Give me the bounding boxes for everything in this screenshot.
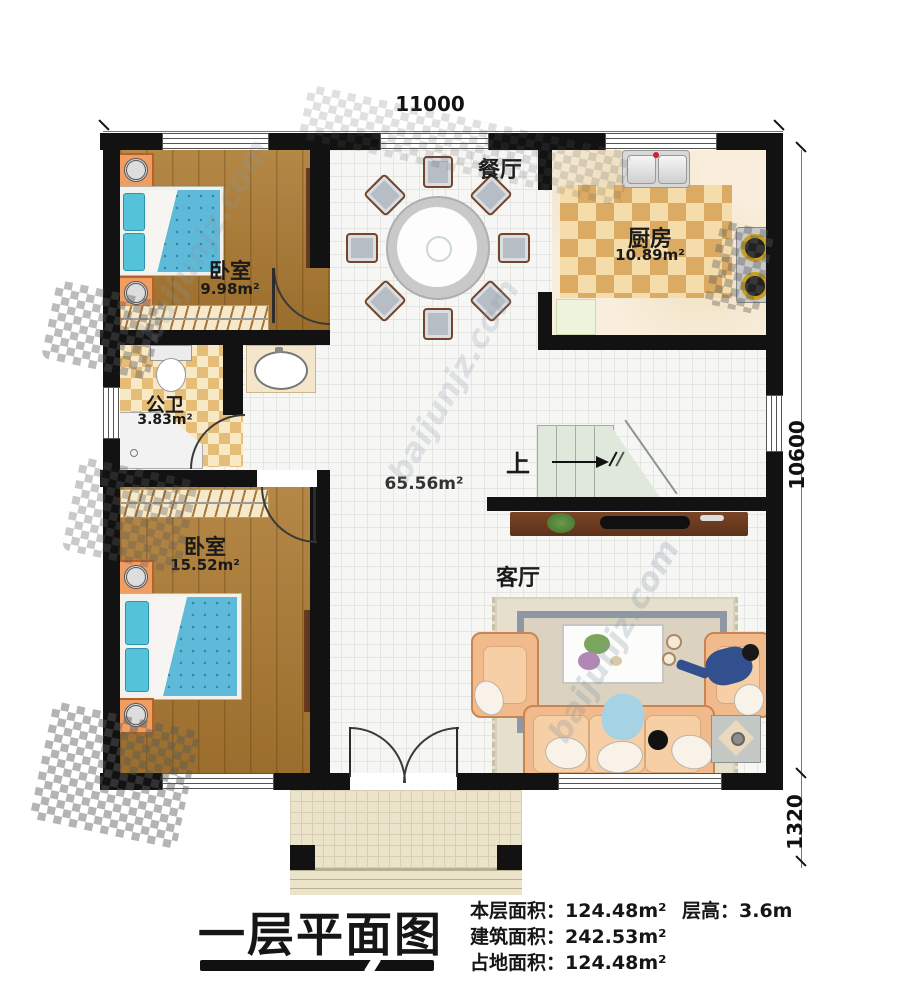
porch-column: [497, 845, 522, 870]
bed-bedroom-bottom: [118, 593, 242, 700]
door-leaf: [313, 487, 316, 542]
dimension-tick: [98, 119, 109, 130]
stat-land-area: 占地面积：124.48m²: [470, 950, 666, 976]
wall-bathroom-top: [100, 330, 330, 345]
stats-block: 本层面积：124.48m² 建筑面积：242.53m² 占地面积：124.48m…: [470, 898, 666, 976]
pillow: [123, 193, 145, 231]
stat-value: 124.48m²: [565, 900, 666, 922]
lamp-symbol: [124, 565, 148, 589]
person-head: [648, 730, 668, 750]
side-table: [711, 715, 761, 763]
table-lamp-icon: [731, 732, 745, 746]
lamp-symbol: [124, 158, 148, 182]
dimension-right-height: 10600: [785, 405, 809, 505]
dining-chair: [498, 233, 530, 263]
dining-label: 餐厅: [460, 152, 540, 184]
dining-chair: [423, 156, 453, 188]
wall-bedroom-top-right: [310, 150, 330, 268]
stat-value: 242.53m²: [565, 926, 666, 948]
nightstand: [118, 153, 154, 189]
bedroom-bottom-area: 15.52m²: [155, 556, 255, 574]
dining-table-center: [426, 236, 452, 262]
pillow: [123, 233, 145, 271]
window: [558, 773, 722, 790]
dimension-porch-height: 1320: [783, 782, 807, 862]
coffee-table: [562, 624, 664, 684]
dining-table: [386, 196, 490, 300]
wall-under-stairs: [487, 497, 783, 511]
pillow: [125, 601, 149, 645]
teacup: [662, 652, 676, 666]
wardrobe-rod: [121, 318, 268, 320]
dining-chair: [423, 308, 453, 340]
door-leaf: [456, 727, 458, 777]
bedroom-top-area: 9.98m²: [180, 280, 280, 298]
mattress: [151, 597, 237, 696]
stat-value: 124.48m²: [565, 952, 666, 974]
porch: [290, 790, 522, 868]
sink-bowl: [627, 155, 656, 184]
stat-floor-area: 本层面积：124.48m²: [470, 898, 666, 924]
wall-kitchen-bottom: [538, 335, 783, 350]
vase: [610, 656, 622, 666]
stairs-arrow-icon: [596, 456, 609, 468]
stat-label: 占地面积：: [470, 952, 565, 974]
hall-sink-counter: [246, 345, 316, 393]
porch-column: [290, 845, 315, 870]
wall-left: [103, 133, 120, 790]
window: [162, 133, 269, 150]
floor-height-label: 层高：: [682, 900, 739, 922]
floor-plan: 餐厅 厨房 10.89m² 卧室 9.98m² 公卫 3.83m² 卧室 15.…: [0, 0, 907, 992]
wall-right: [766, 133, 783, 790]
remote: [700, 515, 724, 521]
burner-icon: [741, 234, 769, 262]
flower-decor: [578, 652, 600, 670]
dimension-top-width: 11000: [350, 92, 510, 116]
faucet-icon: [275, 347, 283, 353]
nightstand: [118, 698, 154, 734]
kitchen-mat: [556, 299, 596, 335]
toilet-bowl: [156, 358, 186, 392]
plan-title: 一层平面图: [198, 896, 443, 965]
tv: [600, 516, 690, 529]
porch-steps: [290, 868, 522, 895]
stat-label: 本层面积：: [470, 900, 565, 922]
stairs-up-label: 上: [500, 444, 536, 479]
stat-label: 建筑面积：: [470, 926, 565, 948]
open-area-label: 65.56m²: [382, 474, 466, 494]
door-leaf: [349, 727, 351, 777]
blanket: [151, 597, 237, 696]
teacup: [666, 634, 682, 650]
dimension-line-top: [103, 131, 783, 132]
sink-bowl: [658, 155, 687, 184]
pillow: [125, 648, 149, 692]
stat-building-area: 建筑面积：242.53m²: [470, 924, 666, 950]
living-label: 客厅: [478, 560, 558, 592]
tv-cabinet: [510, 512, 748, 536]
faucet-icon: [653, 152, 659, 158]
lamp-symbol: [124, 281, 148, 305]
floor-height-value: 3.6m: [739, 900, 792, 922]
kitchen-area: 10.89m²: [600, 246, 700, 264]
stairs-direction-line: [552, 461, 598, 463]
dining-chair: [346, 233, 378, 263]
kitchen-sink: [622, 150, 690, 188]
window: [162, 773, 274, 790]
lamp-symbol: [124, 703, 148, 727]
window: [766, 395, 783, 452]
nightstand: [118, 560, 154, 596]
person-head: [742, 644, 759, 661]
stove: [736, 227, 768, 303]
window: [605, 133, 717, 150]
bedroom-bottom-door-opening: [257, 470, 317, 487]
burner-icon: [741, 272, 769, 300]
toilet: [150, 345, 190, 391]
window: [380, 133, 489, 150]
floor-height: 层高：3.6m: [682, 898, 792, 924]
title-underline: [200, 960, 434, 971]
dimension-tick: [773, 119, 784, 130]
plant-icon: [547, 513, 575, 533]
wardrobe-bedroom-bottom: [120, 489, 269, 518]
window: [103, 387, 120, 439]
bathroom-area: 3.83m²: [125, 412, 205, 428]
wall-bathroom-right: [223, 345, 243, 415]
drain-icon: [130, 449, 138, 457]
flower-decor: [584, 634, 610, 654]
wall-kitchen-left: [538, 150, 552, 190]
wardrobe-rod: [121, 502, 268, 504]
hall-sink: [254, 351, 308, 390]
